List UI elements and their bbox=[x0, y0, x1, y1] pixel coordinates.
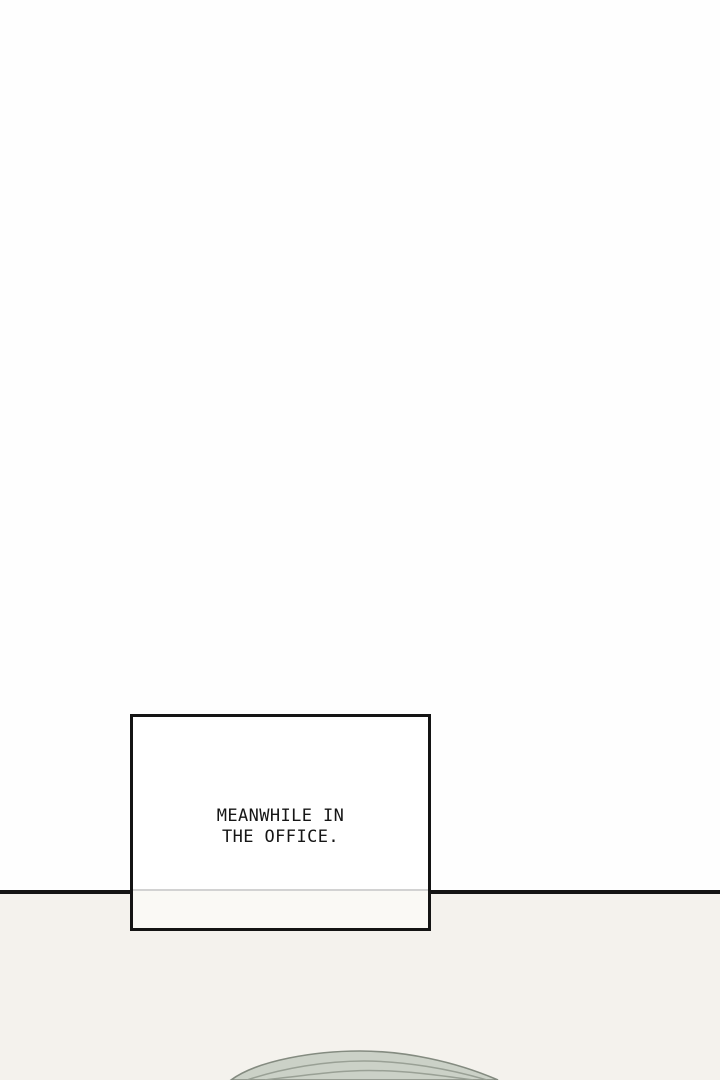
comic-panel-page: MEANWHILE IN THE OFFICE. bbox=[0, 0, 720, 1080]
head-top-artwork bbox=[0, 1036, 720, 1080]
caption-text-line1: MEANWHILE IN bbox=[217, 806, 345, 827]
dome-outline-shape bbox=[231, 1051, 498, 1080]
caption-text-line2: THE OFFICE. bbox=[217, 827, 345, 848]
caption-box: MEANWHILE IN THE OFFICE. bbox=[130, 714, 431, 931]
caption-box-lower-fill bbox=[133, 891, 428, 928]
caption-inner-line bbox=[133, 889, 428, 891]
caption-text: MEANWHILE IN THE OFFICE. bbox=[217, 806, 345, 848]
